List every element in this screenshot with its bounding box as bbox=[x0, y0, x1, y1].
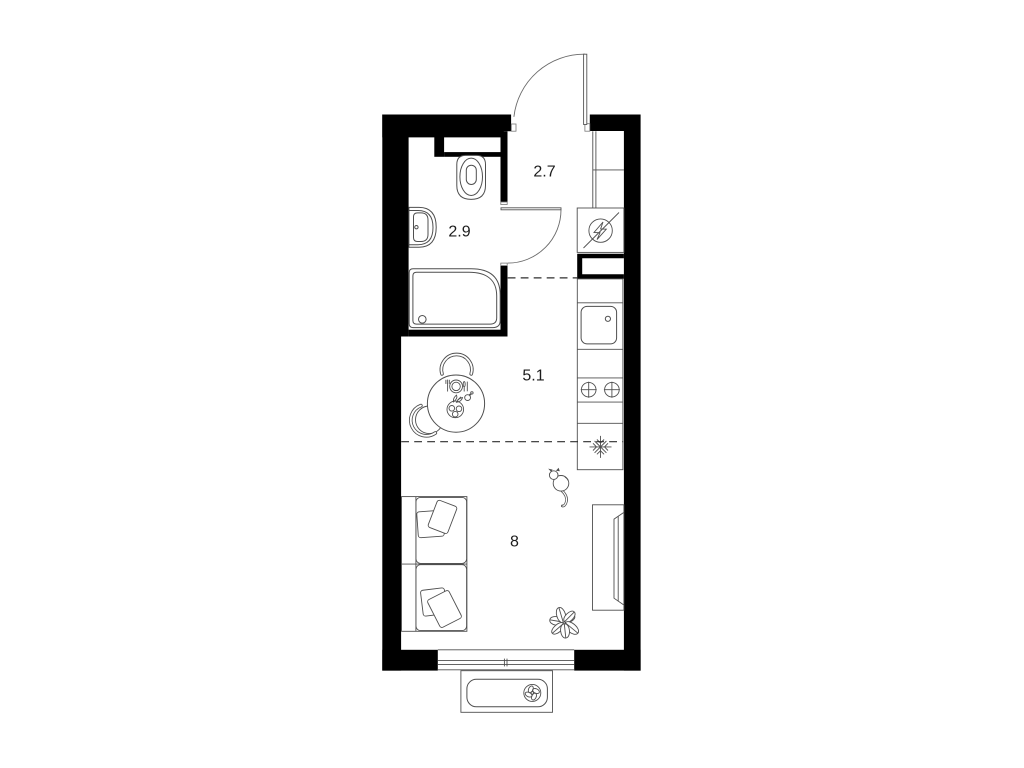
svg-text:2.7: 2.7 bbox=[533, 164, 555, 181]
svg-text:2.9: 2.9 bbox=[448, 224, 470, 241]
svg-text:5.1: 5.1 bbox=[522, 368, 544, 385]
svg-text:8: 8 bbox=[510, 534, 519, 551]
